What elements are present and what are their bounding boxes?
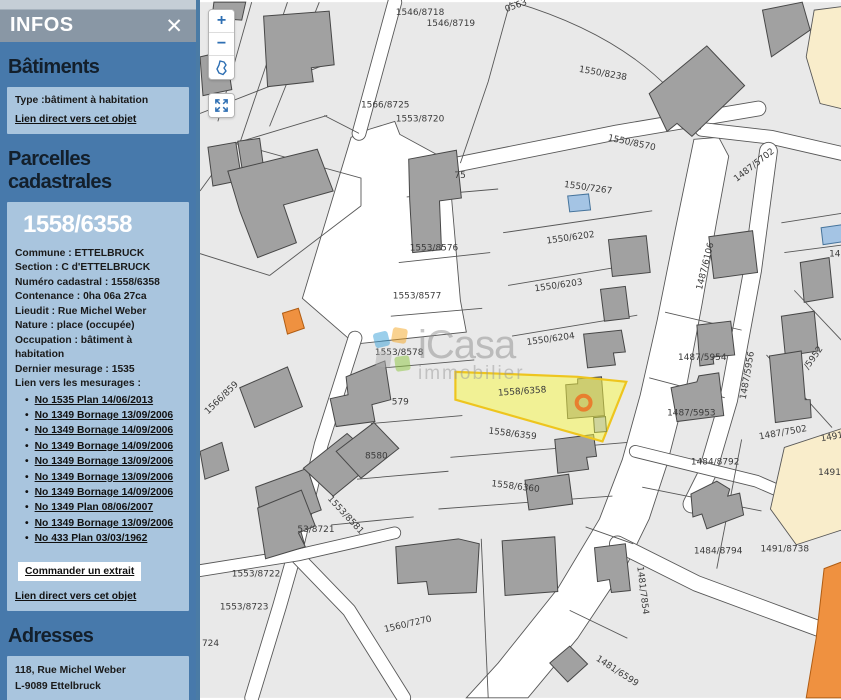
mesurage-link[interactable]: No 1535 Plan 14/06/2013 [35, 395, 154, 406]
gray-building [800, 258, 833, 303]
parcel-details: Commune : ETTELBRUCKSection : C d'ETTELB… [15, 247, 181, 392]
parcel-detail-line: Commune : ETTELBRUCK [15, 247, 181, 262]
cadastral-map[interactable]: 1546/87181546/871905631550/82381566/8725… [200, 0, 841, 700]
parcel-label: 1546/8718 [396, 8, 445, 18]
map-canvas[interactable]: 1546/87181546/871905631550/82381566/8725… [200, 0, 841, 700]
app: INFOS ✕ Bâtiments Type :bâtiment à habit… [0, 0, 841, 700]
parcel-detail-line: Nature : place (occupée) [15, 319, 181, 334]
mesurage-link[interactable]: No 1349 Bornage 13/09/2006 [35, 456, 174, 467]
blue-building [568, 194, 591, 212]
panel-body: Bâtiments Type :bâtiment à habitation Li… [0, 42, 196, 700]
panel-header: INFOS ✕ [0, 0, 196, 42]
mesurage-item: No 1349 Bornage 13/09/2006 [25, 470, 181, 485]
mesurage-link[interactable]: No 1349 Bornage 13/09/2006 [35, 410, 174, 421]
building-type: Type :bâtiment à habitation [15, 94, 181, 109]
adresses-box: 118, Rue Michel WeberL-9089 Ettelbruck L… [7, 656, 189, 700]
map-controls: + − [208, 9, 235, 118]
order-extract-button[interactable]: Commander un extrait [18, 562, 141, 581]
parcel-label: 148 [829, 250, 841, 260]
mesurage-item: No 1535 Plan 14/06/2013 [25, 393, 181, 408]
gray-building [608, 236, 650, 277]
mesurage-link[interactable]: No 1349 Bornage 14/09/2006 [35, 487, 174, 498]
parcel-label: 1484/8794 [694, 547, 743, 557]
expand-arrows-icon [214, 98, 229, 113]
mesurage-link[interactable]: No 1349 Bornage 14/09/2006 [35, 441, 174, 452]
gray-building [781, 311, 818, 356]
parcel-label: 1487/5953 [667, 409, 716, 419]
batiments-direct-link[interactable]: Lien direct vers cet objet [15, 112, 136, 127]
mesurage-item: No 1349 Bornage 13/09/2006 [25, 408, 181, 423]
parcel-detail-line: Numéro cadastral : 1558/6358 [15, 276, 181, 291]
zoom-in-button[interactable]: + [209, 10, 234, 33]
parcel-label: 724 [202, 639, 219, 649]
fullscreen-button[interactable] [209, 94, 234, 117]
mesurage-link[interactable]: No 1349 Bornage 14/09/2006 [35, 425, 174, 436]
parcel-label: 1546/8719 [427, 19, 476, 29]
mesurage-item: No 433 Plan 03/03/1962 [25, 531, 181, 546]
zoom-controls: + − [208, 9, 235, 80]
parcel-label: 1487/5954 [678, 353, 727, 363]
fullscreen-control [208, 93, 235, 118]
gray-building [601, 286, 630, 321]
mesurage-link[interactable]: No 1349 Bornage 13/09/2006 [35, 472, 174, 483]
mesurage-item: No 1349 Bornage 14/09/2006 [25, 439, 181, 454]
mesurage-item: No 1349 Bornage 14/09/2006 [25, 485, 181, 500]
blue-building [821, 225, 841, 245]
parcel-detail-line: Contenance : 0ha 06a 27ca [15, 290, 181, 305]
mesurage-item: No 1349 Plan 08/06/2007 [25, 500, 181, 515]
parcel-label: 53/8721 [297, 525, 334, 535]
parcel-label: 1553/8578 [375, 348, 424, 358]
section-heading-batiments: Bâtiments [8, 56, 189, 79]
address-line: 118, Rue Michel Weber [15, 663, 181, 679]
info-panel: INFOS ✕ Bâtiments Type :bâtiment à habit… [0, 0, 200, 700]
gray-building [709, 231, 758, 279]
mesurage-link[interactable]: No 1349 Bornage 13/09/2006 [35, 518, 174, 529]
close-icon[interactable]: ✕ [162, 16, 186, 37]
zoom-out-button[interactable]: − [209, 33, 234, 56]
section-heading-adresses: Adresses [8, 625, 189, 648]
address-lines: 118, Rue Michel WeberL-9089 Ettelbruck [15, 663, 181, 695]
parcelles-direct-link[interactable]: Lien direct vers cet objet [15, 589, 136, 604]
mesurage-link[interactable]: No 1349 Plan 08/06/2007 [35, 502, 154, 513]
gray-building [502, 537, 558, 596]
panel-title: INFOS [10, 14, 74, 37]
parcel-label: 1553/8723 [220, 602, 269, 612]
parcel-detail-line: Occupation : bâtiment à habitation [15, 334, 181, 363]
parcelles-box: 1558/6358 Commune : ETTELBRUCKSection : … [7, 202, 189, 611]
parcel-detail-line: Lieudit : Rue Michel Weber [15, 305, 181, 320]
pale-building [594, 417, 607, 433]
mesurage-link[interactable]: No 433 Plan 03/03/1962 [35, 533, 148, 544]
parcel-label: 1553/8720 [396, 114, 445, 124]
parcel-label: 1553/8722 [232, 570, 281, 580]
batiments-box: Type :bâtiment à habitation Lien direct … [7, 87, 189, 134]
mesurage-item: No 1349 Bornage 13/09/2006 [25, 516, 181, 531]
mesurages-list: No 1535 Plan 14/06/2013No 1349 Bornage 1… [25, 393, 181, 547]
parcel-detail-line: Section : C d'ETTELBRUCK [15, 261, 181, 276]
parcel-detail-line: Lien vers les mesurages : [15, 377, 181, 392]
mesurage-item: No 1349 Bornage 14/09/2006 [25, 423, 181, 438]
luxembourg-outline-icon [214, 60, 230, 76]
address-line: L-9089 Ettelbruck [15, 679, 181, 695]
parcel-label: 1553/8576 [410, 244, 459, 254]
parcel-label: 1491/8 [818, 468, 841, 478]
mesurage-item: No 1349 Bornage 13/09/2006 [25, 454, 181, 469]
zoom-extent-button[interactable] [209, 56, 234, 79]
parcel-label: 1566/8725 [361, 101, 410, 111]
parcel-detail-line: Dernier mesurage : 1535 [15, 363, 181, 378]
parcel-label: 8580 [365, 451, 388, 461]
parcel-label: 1553/8577 [393, 291, 442, 301]
parcel-label: 1491/8738 [761, 545, 810, 555]
parcel-label: 75 [454, 171, 465, 181]
parcel-number-title: 1558/6358 [23, 211, 181, 239]
parcel-label: 1484/8792 [691, 457, 740, 467]
parcel-label: 579 [392, 398, 409, 408]
section-heading-parcelles: Parcelles cadastrales [8, 148, 189, 194]
